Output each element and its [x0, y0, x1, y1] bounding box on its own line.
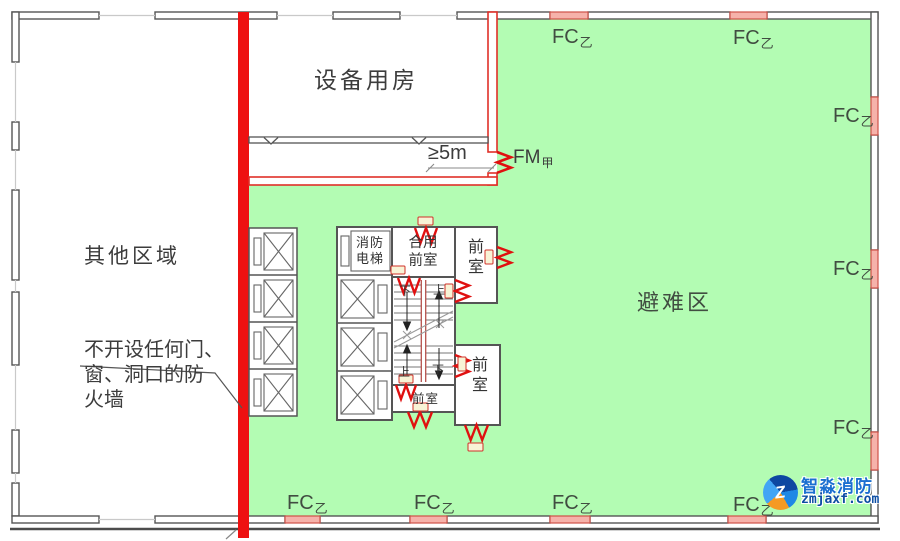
stair-down-label: 下 — [399, 282, 411, 299]
vestibule-label: 前室 — [412, 388, 439, 407]
fire-elevator-label: 消防电梯 — [355, 235, 385, 267]
fire-window-label: FC乙 — [414, 492, 454, 515]
floorplan: 设备用房 其他区域 避难区 不开设任何门、 窗、洞口的防 火墙 ≥5m FM甲 … — [0, 0, 900, 541]
stair-down-label: 下 — [432, 361, 444, 378]
fire-window-label: FC乙 — [287, 492, 327, 515]
fire-window-label: FC乙 — [833, 105, 873, 128]
other-area-label: 其他区域 — [84, 240, 180, 270]
refuge-area-label: 避难区 — [637, 285, 712, 317]
dimension-line — [426, 164, 496, 172]
logo-monogram: Z — [774, 482, 787, 503]
equipment-room-label: 设备用房 — [314, 61, 418, 95]
fire-window-label: FC乙 — [552, 492, 592, 515]
distance-label: ≥5m — [428, 142, 467, 165]
watermark-site: zmjaxf.com — [801, 492, 879, 507]
stair-up-label: 上 — [398, 363, 410, 380]
firewall-note: 不开设任何门、 窗、洞口的防 火墙 — [84, 338, 254, 413]
watermark: Z 智淼消防 zmjaxf.com — [763, 472, 888, 518]
fire-door-label: FM甲 — [513, 147, 552, 169]
vestibule-label: 前室 — [467, 238, 485, 278]
stair-up-label: 上 — [433, 281, 445, 298]
vestibule-label: 前室 — [471, 356, 489, 396]
fire-window-label: FC乙 — [552, 26, 592, 49]
fire-window-label: FC乙 — [833, 417, 873, 440]
elevator-bank-left — [249, 228, 297, 416]
zmjaxf-logo-icon: Z — [763, 475, 798, 510]
break-tick — [226, 530, 236, 539]
floorplan-drawing — [0, 0, 900, 541]
fire-window-label: FC乙 — [733, 27, 773, 50]
shared-vestibule-label: 合用前室 — [407, 234, 439, 270]
fire-window-label: FC乙 — [833, 258, 873, 281]
fire-wall — [238, 12, 249, 538]
